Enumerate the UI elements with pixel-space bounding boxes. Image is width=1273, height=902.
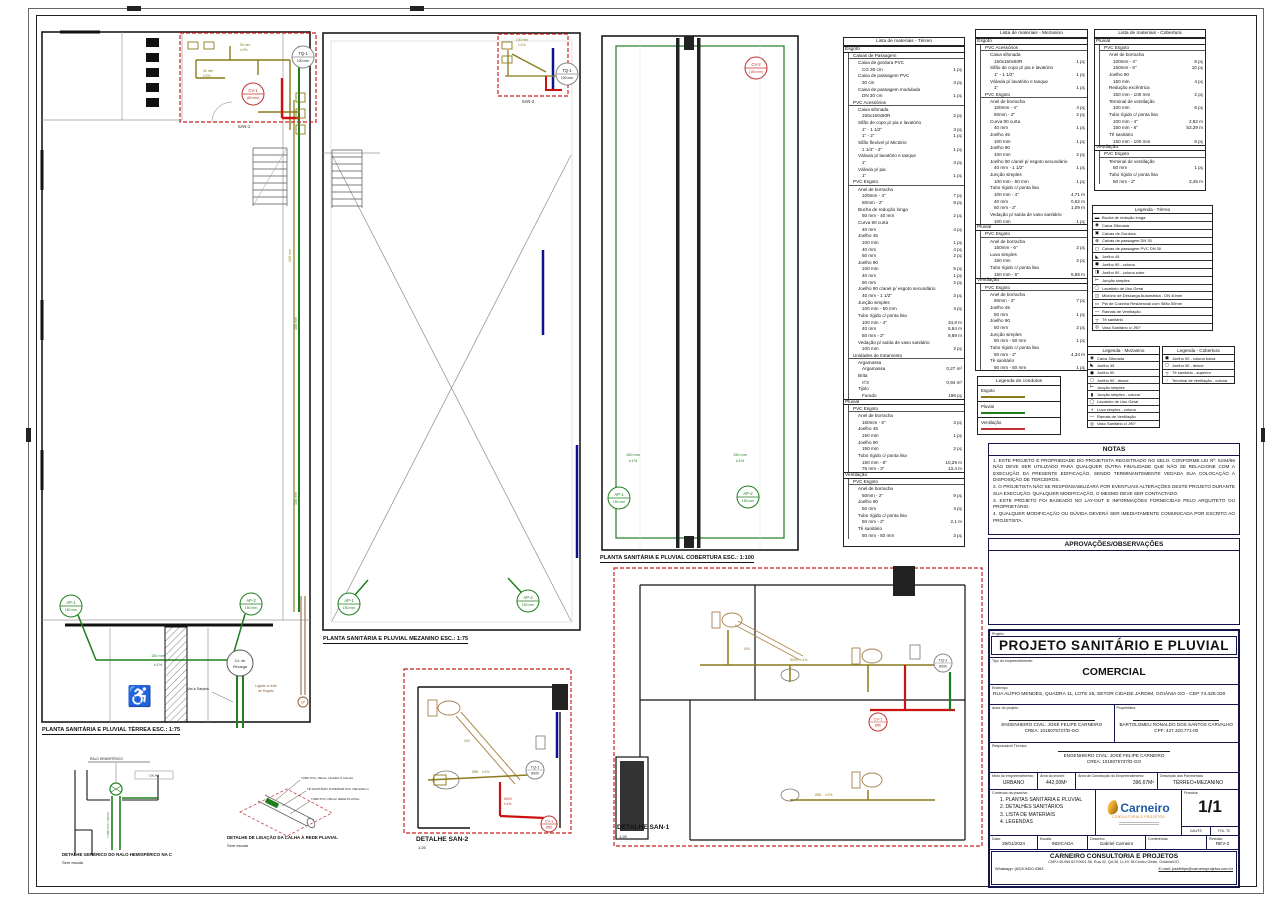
pia-cozinha-icon: ▭	[1094, 301, 1100, 307]
material-item-row: 150mm - 6"3 pç	[848, 419, 964, 426]
legend-row: ⊢Junção simples	[1088, 384, 1159, 391]
material-item-row: Anel de borracha	[848, 485, 964, 492]
date-cell: Data: 29/01/2024	[990, 836, 1038, 849]
svg-text:50 mm: 50 mm	[240, 43, 251, 47]
detail-calha: TUBO PVC 150mm LIGADO À CALHA TÊ SANITÁR…	[240, 776, 369, 836]
legend-row: ◼Joelho 90 - coluna	[1093, 261, 1212, 269]
svg-text:i=1%: i=1%	[518, 43, 526, 47]
toilet	[428, 700, 460, 716]
drawing-value: Gabriel Carneiro	[1088, 841, 1145, 846]
lot-area-cell: Área do imóvel: 442,00M²	[1038, 773, 1076, 789]
ap1-callout-mezanino: AP-1 150 mm	[338, 593, 360, 615]
svg-text:AP-2: AP-2	[246, 598, 256, 603]
material-item-row: Anel de borracha	[980, 238, 1087, 245]
material-item-row: 50 mm - 2"9,89 m	[848, 332, 964, 339]
material-item-row: Joelho 90	[848, 499, 964, 506]
legend-label: Vaso Sanitário c/ J90°	[1102, 325, 1141, 330]
note-item: 1. ESTE PROJETO É PROPRIEDADE DO PROJETI…	[993, 458, 1235, 484]
author-owner-section: Autor do projeto: ENGENHEIRO CIVIL: JOSÉ…	[990, 705, 1238, 743]
material-item-row: Argamassa0,27 m³	[848, 366, 964, 373]
material-item-row: 75 mm - 3"13,4 m	[848, 465, 964, 472]
caixa-gordura-icon: ▣	[1094, 230, 1100, 236]
te-sanitario-icon: ┬	[1094, 317, 1100, 322]
svg-text:150 mm: 150 mm	[245, 606, 257, 610]
built-area-value: 396,67M²	[1076, 780, 1157, 786]
approvals-title: APROVAÇÕES/OBSERVAÇÕES	[989, 539, 1239, 551]
legend-row: ┬Tê sanitário - superior	[1163, 370, 1234, 377]
conduit-color-line	[981, 396, 1025, 398]
material-item-row: Terminal de ventilação	[1099, 158, 1205, 165]
company-whatsapp: Whatsapp: (62)9.9420-4363	[995, 866, 1043, 871]
author-signature-line	[1009, 720, 1095, 721]
svg-text:i=1%: i=1%	[800, 658, 807, 662]
ramais-ventilacao-icon: —	[1089, 414, 1095, 419]
svg-text:Ø40: Ø40	[744, 647, 750, 651]
ap1-callout-cobertura: AP-1 150 mm	[608, 487, 630, 509]
material-item-row: 1" - 1 1/2"1 pç	[980, 71, 1087, 78]
material-item-row: 150mm - 6"10 pç	[1099, 65, 1205, 72]
legend-row: ◻Joelho 90 - desce	[1088, 377, 1159, 384]
material-item-row: 100 mm1 pç	[980, 218, 1087, 225]
material-item-row: 150x150x50R2 pç	[848, 113, 964, 120]
legend-label: Joelho 90 - coluna bolsa	[1172, 356, 1215, 361]
material-item-row: Caixa sifonada	[848, 106, 964, 113]
material-item-row: 1 1/4" - 2"1 pç	[848, 146, 964, 153]
svg-text:AP-2: AP-2	[523, 595, 533, 600]
material-item-row: Curva 90 curta	[848, 219, 964, 226]
material-item-row: Luva simples	[980, 251, 1087, 258]
material-item-row: 50 mm - 2"4,34 m	[980, 351, 1087, 358]
tq1-callout-san1: TQ-1 Ø100	[934, 654, 952, 672]
material-item-row: 50 mm - 50 mm3 pç	[848, 532, 964, 539]
project-section: Projeto: PROJETO SANITÁRIO E PLUVIAL	[990, 631, 1238, 658]
material-item-row: Joelho 90	[980, 318, 1087, 325]
material-group-row: PVC Esgoto	[980, 91, 1087, 98]
legend-row: —Ramais de Ventilação	[1088, 413, 1159, 420]
revision-value: REV-2	[1207, 841, 1238, 846]
content-item: 3. LISTA DE MATERIAIS	[1000, 812, 1095, 820]
legend-label: Joelho 90 - coluna	[1102, 262, 1135, 267]
material-item-row: Sifão flexível p/ Mictório	[848, 139, 964, 146]
material-section-row: Ventilação	[976, 278, 1087, 285]
pluvial-drain-pipes	[78, 614, 245, 728]
svg-text:TÊ SANITÁRIO SUPERIOR PVC 150x: TÊ SANITÁRIO SUPERIOR PVC 150x100mm	[307, 786, 369, 791]
material-item-row: 100 mm1 pç	[980, 138, 1087, 145]
svg-text:100 mm: 100 mm	[561, 76, 573, 80]
luva-simples-coluna-icon: ◖	[1089, 407, 1095, 412]
svg-text:40 mm: 40 mm	[203, 69, 214, 73]
conduit-row: Ventilação	[978, 418, 1060, 434]
vaso-sanitario-icon: ◎	[1094, 324, 1100, 330]
material-list-cobertura: Lista de materiais - CoberturaPluvialPVC…	[1094, 29, 1206, 191]
detail-san1-scale: 1:25	[619, 834, 627, 839]
material-item-row: Tubo rígido c/ ponta lisa	[1099, 171, 1205, 178]
svg-text:Ø100: Ø100	[939, 665, 947, 669]
legend-row: ⊢Junção simples	[1093, 277, 1212, 285]
svg-text:Ø50: Ø50	[815, 793, 821, 797]
material-item-row: Curva 90 curta	[980, 118, 1087, 125]
legend-label: Terminal de ventilação - coluna	[1172, 378, 1227, 383]
address-section: Endereço: RUA ALÍPIO MENDES, QUADRA 11, …	[990, 685, 1238, 705]
esgoto-connection-pipe	[301, 596, 305, 695]
svg-text:150 mm: 150 mm	[65, 608, 77, 612]
material-item-row: nº30,94 m³	[848, 379, 964, 386]
type-label: Tipo do empreendimento:	[990, 658, 1238, 663]
material-item-row: Tubo rígido c/ ponta lisa	[980, 264, 1087, 271]
svg-text:CV-2: CV-2	[751, 62, 761, 67]
material-item-row: 50 mm - 40 mm2 pç	[848, 212, 964, 219]
legend-row: ◼Joelho 90	[1088, 370, 1159, 377]
material-section-row: Pluvial	[1095, 38, 1205, 45]
carneiro-leaf-icon	[1106, 800, 1120, 816]
material-item-row: 30 cm3 pç	[848, 79, 964, 86]
svg-text:Ø50: Ø50	[875, 724, 881, 728]
floors-label: Descrição dos Pavimentos:	[1158, 773, 1238, 778]
material-item-row: 1" - 2"1 pç	[848, 133, 964, 140]
material-item-row: 1"1 pç	[848, 172, 964, 179]
material-item-row: 50 mm1 pç	[1099, 164, 1205, 171]
material-item-row: Vedação p/ saída de vaso sanitário	[848, 339, 964, 346]
material-item-row: Válvula p/ lavatório e tanque	[848, 153, 964, 160]
svg-text:i=1%: i=1%	[154, 663, 163, 667]
material-group-row: PVC Acessórios	[980, 45, 1087, 52]
company-footer: CARNEIRO CONSULTORIA E PROJETOS CNPJ:49.…	[991, 851, 1237, 885]
legend-label: Joelho 90 - desce	[1097, 378, 1129, 383]
author-name: ENGENHEIRO CIVIL: JOSÉ FELIPE CARNEIRO	[990, 722, 1114, 729]
owner-cpf: CPF: 427.320.771-00	[1115, 728, 1239, 735]
plan-cobertura-caption: PLANTA SANITÁRIA E PLUVIAL COBERTURA ESC…	[600, 555, 754, 563]
material-section-row: Esgoto	[976, 38, 1087, 45]
legend-label: Tê sanitário	[1102, 317, 1123, 322]
material-item-row: Tubo rígido c/ ponta lisa	[848, 312, 964, 319]
material-item-row: Sifão de copo p/ pia e lavatório	[980, 65, 1087, 72]
plan-mezanino-caption: PLANTA SANITÁRIA E PLUVIAL MEZANINO ESC.…	[323, 636, 468, 644]
ap1-callout-terreo: AP-1 150 mm	[60, 595, 82, 617]
stairs-terreo	[253, 148, 287, 206]
legend-row: ▭Pia de Cozinha Residencial com Sifão 50…	[1093, 300, 1212, 308]
material-item-row: 40 mm1 pç	[848, 272, 964, 279]
material-item-row: Tê sanitário	[1099, 131, 1205, 138]
material-group-row: PVC Acessórios	[848, 99, 964, 106]
ramais-ventilacao-icon: —	[1094, 309, 1100, 314]
responsible-signature-line	[1058, 751, 1170, 752]
tq1-callout-terreo: TQ-1 100 mm	[292, 46, 314, 68]
material-group-row: PVC Esgoto	[848, 479, 964, 486]
conduit-legend-title: Legenda de condutos	[978, 377, 1060, 386]
contents-section: Conteúdo da prancha: 1. PLANTAS SANITÁRI…	[990, 790, 1238, 836]
material-item-row: 150 mm2 pç	[848, 445, 964, 452]
svg-text:CALHA: CALHA	[149, 774, 159, 778]
legend-row: ◻Joelho 90 - desce	[1163, 362, 1234, 369]
material-item-row: Válvula p/ pia	[848, 166, 964, 173]
conduit-row: Esgoto	[978, 386, 1060, 402]
content-item: 2. DETALHES SANITÁRIOS	[1000, 804, 1095, 812]
author-cell: Autor do projeto: ENGENHEIRO CIVIL: JOSÉ…	[990, 705, 1114, 742]
legend-row: ◯Lavatório de Uso Geral	[1093, 285, 1212, 293]
material-group-row: Unidades de tratamento	[848, 352, 964, 359]
legend-row: ⊕Caixas de passagem DN 30	[1093, 238, 1212, 246]
material-item-row: 40 mm4 pç	[848, 246, 964, 253]
material-item-row: Sifão de copo p/ pia e lavatório	[848, 119, 964, 126]
mictorio-icon: ◫	[1094, 293, 1100, 299]
material-item-row: Joelho 45	[848, 232, 964, 239]
notes-body: 1. ESTE PROJETO É PROPRIEDADE DO PROJETI…	[989, 456, 1239, 527]
svg-text:Ø40: Ø40	[464, 739, 470, 743]
material-item-row: 100 mm5 pç	[848, 266, 964, 273]
svg-text:(50 mm): (50 mm)	[247, 96, 260, 100]
material-item-row: Furado198 pç	[848, 392, 964, 399]
material-list-title: Lista de materiais - Térreo	[844, 38, 964, 46]
svg-text:150 mm: 150 mm	[151, 654, 165, 658]
material-item-row: Tubo rígido c/ ponta lisa	[848, 452, 964, 459]
material-item-row: 50 mm3 pç	[848, 505, 964, 512]
environment-cell: Meio do empreendimento: URBANO	[990, 773, 1038, 789]
svg-text:CV-1: CV-1	[545, 820, 553, 824]
material-group-row: PVC Esgoto	[980, 284, 1087, 291]
plan-mezanino: SAN-2 100 mm i=1% TQ-1 100 mm	[323, 33, 580, 630]
material-list-title: Lista de materiais - Mezanino	[976, 30, 1087, 38]
checked-cell: Conferência:	[1146, 836, 1207, 849]
detail-ralo-scale: Sem escala	[62, 860, 83, 865]
stairs-mezanino	[332, 150, 362, 208]
svg-text:Ø100: Ø100	[504, 797, 512, 801]
material-item-row: 50 mm2 pç	[848, 279, 964, 286]
material-item-row: Redução excêntrica	[1099, 85, 1205, 92]
environment-label: Meio do empreendimento:	[990, 773, 1037, 778]
joelho-90-coluna-bolsa-icon: ◼	[1164, 355, 1170, 361]
detail-calha-scale: Sem escala	[227, 843, 248, 848]
hatched-column	[165, 627, 187, 722]
material-item-row: 40 mm - 1 1/2"3 pç	[848, 292, 964, 299]
material-item-row: 100 mm6 pç	[1099, 105, 1205, 112]
material-item-row: 50 mm - 2"3,45 m	[1099, 178, 1205, 185]
material-item-row: 40 mm1 pç	[980, 125, 1087, 132]
material-item-row: 50 mm - 2"2,1 m	[848, 519, 964, 526]
svg-text:i=1%: i=1%	[504, 802, 511, 806]
svg-text:150 mm: 150 mm	[294, 317, 298, 330]
svg-text:i=2%: i=2%	[203, 74, 211, 78]
detail-ralo-caption: DETALHE GENÉRICO DO RALO HEMISFÉRICO NA …	[62, 852, 172, 857]
material-item-row: Junção simples	[980, 171, 1087, 178]
svg-text:TQ-1: TQ-1	[531, 766, 540, 770]
material-item-row: 50 mm - 50 mm1 pç	[980, 364, 1087, 371]
material-item-row: 150 mm1 pç	[848, 432, 964, 439]
svg-text:150 mm: 150 mm	[343, 606, 355, 610]
material-item-row: Argamassa	[848, 359, 964, 366]
legend-title: Legenda - Mezanino	[1088, 347, 1159, 355]
material-item-row: 150 mm4 pç	[1099, 78, 1205, 85]
drawing-cell: Desenho: Gabriel Carneiro	[1088, 836, 1146, 849]
vaso-sanitario-icon: ◎	[1089, 421, 1095, 427]
material-item-row: Bucha de redução longa	[848, 206, 964, 213]
legend-row: ◼Joelho 90 - coluna bolsa	[1163, 355, 1234, 362]
svg-text:TUBO PVC 150mm LIGADO À CALHA: TUBO PVC 150mm LIGADO À CALHA	[301, 776, 353, 780]
material-item-row: 50mm - 2"9 pç	[848, 492, 964, 499]
material-item-row: Junção simples	[848, 299, 964, 306]
detail-san2: TQ-1 Ø100 CV-1 Ø50 Ø50 i=2% Ø40 Ø100 i=1…	[404, 669, 571, 833]
ap2-callout-mezanino: AP-2 150 mm	[517, 590, 539, 612]
legend-row: ◎Vaso Sanitário c/ J90°	[1093, 324, 1212, 331]
legend-row: ▬Bucha de redução longa	[1093, 214, 1212, 222]
legend-row: ◫Mictório de Descarga Automática - DN 40…	[1093, 292, 1212, 300]
legend-label: Luva simples - coluna	[1097, 407, 1136, 412]
svg-text:150 mm: 150 mm	[294, 492, 298, 505]
svg-text:150 mm: 150 mm	[613, 500, 625, 504]
svg-text:TQ-1: TQ-1	[939, 659, 948, 663]
meta-section: Data: 29/01/2024 Escala: INDICADA Desenh…	[990, 836, 1238, 850]
plan-cobertura: 150 mm i=1% 150 mm i=1% AP-1 150 mm AP-2…	[602, 36, 798, 550]
cv1-callout-terreo: CV-1 (50 mm)	[242, 83, 264, 105]
conduit-legend: Legenda de condutosEsgotoPluvialVentilaç…	[977, 376, 1061, 435]
responsible-crea: CREA: 1018075737/D-GO	[990, 759, 1238, 766]
content-item: 4. LEGENDAS	[1000, 819, 1095, 827]
material-item-row: 40 mm5,84 m	[848, 326, 964, 333]
material-item-row: 100 mm - 4"2,82 m	[1099, 118, 1205, 125]
material-item-row: 100 mm - 50 mm1 pç	[980, 178, 1087, 185]
svg-text:SAN-1: SAN-1	[238, 124, 251, 129]
material-item-row: 100mm - 4"7 pç	[848, 192, 964, 199]
conduit-row: Pluvial	[978, 402, 1060, 418]
material-item-row: Válvula p/ lavatório e tanque	[980, 78, 1087, 85]
urinal	[910, 645, 920, 659]
info-section: Meio do empreendimento: URBANO Área do i…	[990, 773, 1238, 790]
material-item-row: 40 mm - 1 1/2"1 pç	[980, 164, 1087, 171]
checked-label: Conferência:	[1146, 836, 1206, 841]
note-item: 4. QUALQUER MODIFICAÇÃO OU DÚVIDA DEVERÁ…	[993, 511, 1235, 524]
legend-row: —Ramais de Ventilação	[1093, 308, 1212, 316]
terminal-ventilacao-coluna-icon: ↑	[1164, 378, 1170, 383]
legend-label: Mictório de Descarga Automática - DN 40m…	[1102, 293, 1182, 298]
legend-label: Bucha de redução longa	[1102, 215, 1145, 220]
material-item-row: 1"1 pç	[980, 85, 1087, 92]
material-item-row: Tijolo	[848, 385, 964, 392]
material-item-row: 1" - 1 1/2"3 pç	[848, 126, 964, 133]
svg-text:CV-1: CV-1	[248, 88, 258, 93]
contents-list: 1. PLANTAS SANITÁRIA E PLUVIAL2. DETALHE…	[990, 795, 1095, 827]
urinal	[536, 736, 545, 749]
svg-text:AP-1: AP-1	[344, 598, 354, 603]
conduit-color-line	[981, 412, 1025, 414]
legend-label: Ramais de Ventilação	[1102, 309, 1141, 314]
svg-text:150 mm: 150 mm	[626, 453, 640, 457]
environment-value: URBANO	[990, 780, 1037, 786]
material-item-row: Tubo rígido c/ ponta lisa	[1099, 111, 1205, 118]
legend-row: ▣Caixas de Gordura	[1093, 230, 1212, 238]
author-label: Autor do projeto:	[990, 705, 1114, 710]
ap2-callout-cobertura: AP-2 150 mm	[737, 486, 759, 508]
legend-label: Joelho 90 - desce	[1172, 363, 1204, 368]
svg-text:Ø50: Ø50	[546, 826, 552, 830]
conduit-label: Esgoto	[981, 388, 1057, 393]
built-area-cell: Área de Construção do Empreendimento: 39…	[1076, 773, 1158, 789]
svg-text:CV-1: CV-1	[874, 718, 882, 722]
joelho-45-icon: ◣	[1089, 362, 1095, 368]
notes-box: NOTAS 1. ESTE PROJETO É PROPRIEDADE DO P…	[988, 443, 1240, 535]
svg-text:150 mm: 150 mm	[522, 603, 534, 607]
detail-ralo: RALO HEMISFÉRICO CALHA TUBO PVC 150mm	[75, 756, 173, 855]
svg-text:TQ-1: TQ-1	[298, 51, 308, 56]
svg-text:100 mm: 100 mm	[516, 38, 528, 42]
logo-name: Carneiro	[1120, 801, 1169, 815]
conduit-label: Pluvial	[981, 404, 1057, 409]
legend-row: ◎Vaso Sanitário c/ J90°	[1088, 421, 1159, 428]
legend-row: ◣Joelho 45	[1093, 253, 1212, 261]
material-item-row: Tubo rígido c/ ponta lisa	[980, 184, 1087, 191]
material-item-row: Anel de borracha	[848, 186, 964, 193]
legend-label: Caixa Sifonada	[1102, 223, 1129, 228]
note-item: 3. ESTE PROJETO FOI BASEADO NO LAY-OUT E…	[993, 498, 1235, 511]
recharge-box-callout: Cx. de Recarga	[227, 650, 253, 676]
material-item-row: DN 30 cm1 pç	[848, 93, 964, 100]
material-item-row: 50 mm1 pç	[980, 311, 1087, 318]
material-item-row: Joelho 90	[848, 439, 964, 446]
caixa-sifonada-icon: ◉	[1089, 355, 1095, 361]
esgoto-pipes-san1	[700, 630, 935, 800]
owner-label: Proprietário:	[1115, 705, 1239, 710]
lot-area-label: Área do imóvel:	[1038, 773, 1075, 778]
legend-label: Caixas de passagem PVC DN 30	[1102, 246, 1161, 251]
caixa-sifonada-icon: ◉	[1094, 222, 1100, 228]
material-item-row: Tê sanitário	[980, 358, 1087, 365]
title-block: Projeto: PROJETO SANITÁRIO E PLUVIAL Tip…	[988, 629, 1240, 888]
material-item-row: 150mm - 6"2 pç	[980, 244, 1087, 251]
material-item-row: 50mm - 2"9 pç	[848, 199, 964, 206]
sheet-number-cell: Prancha: 1/1 CAU/TS FOL. TC	[1182, 790, 1238, 835]
plan-terreo: 150 mm 150 mm 100 mm SAN-1	[42, 32, 316, 728]
svg-text:i=2%: i=2%	[825, 793, 832, 797]
material-item-row: Anel de borracha	[1099, 51, 1205, 58]
detail-san1-caption: DETALHE SAN-1	[617, 824, 669, 831]
material-item-row: Joelho 45	[980, 131, 1087, 138]
material-item-row: Caixa sifonada	[980, 51, 1087, 58]
legend-label: Joelho 90	[1097, 370, 1114, 375]
material-section-row: Esgoto	[844, 46, 964, 53]
material-list-terreo: Lista de materiais - TérreoEsgotoCaixas …	[843, 37, 965, 547]
legend-label: Vaso Sanitário c/ J90°	[1097, 421, 1136, 426]
material-group-row: Caixas de Passagem	[848, 53, 964, 60]
svg-text:Cx. de: Cx. de	[235, 659, 246, 663]
svg-text:150 mm: 150 mm	[733, 453, 747, 457]
svg-text:SAN-2: SAN-2	[522, 99, 535, 104]
svg-text:100 mm: 100 mm	[297, 59, 309, 63]
material-item-row: 50 mm2 pç	[848, 252, 964, 259]
te-sanitario-superior-icon: ┬	[1164, 370, 1170, 375]
svg-text:TUBO PVC 150mm: TUBO PVC 150mm	[106, 811, 110, 838]
material-item-row: 150 mm2 pç	[980, 258, 1087, 265]
material-group-row: PVC Esgoto	[848, 405, 964, 412]
legend-row: ◯Lavatório de Uso Geral	[1088, 399, 1159, 406]
legend-label: Joelho 90 - coluna sobe	[1102, 270, 1144, 275]
material-group-row: PVC Esgoto	[848, 179, 964, 186]
juncao-simples-icon: ⊢	[1094, 277, 1100, 283]
note-item: 2. O PROJETISTA NÃO SE RESPONSABILIZARÁ …	[993, 484, 1235, 497]
detail-san2-scale: 1:25	[418, 845, 426, 850]
joelho-90-coluna-sobe-icon: ◨	[1094, 269, 1100, 275]
legend-terreo: Legenda - Térreo▬Bucha de redução longa◉…	[1092, 205, 1213, 331]
legend-row: ◣Joelho 45	[1088, 362, 1159, 369]
plan-terreo-caption: PLANTA SANITÁRIA E PLUVIAL TÉRREA ESC.: …	[42, 727, 180, 735]
wheelchair-icon: ♿	[127, 684, 152, 708]
legend-label: Junção simples	[1097, 385, 1125, 390]
cv1-callout-san1: CV-1 Ø50	[869, 713, 887, 731]
legend-row: ↑Terminal de ventilação - coluna	[1163, 377, 1234, 384]
legend-label: Caixas de Gordura	[1102, 231, 1136, 236]
material-list-mezanino: Lista de materiais - MezaninoEsgotoPVC A…	[975, 29, 1088, 371]
material-list-title: Lista de materiais - Cobertura	[1095, 30, 1205, 38]
legend-label: Joelho 45	[1102, 254, 1119, 259]
joelho-90-coluna-icon: ◼	[1094, 261, 1100, 267]
legend-label: Junção simples	[1102, 278, 1130, 283]
